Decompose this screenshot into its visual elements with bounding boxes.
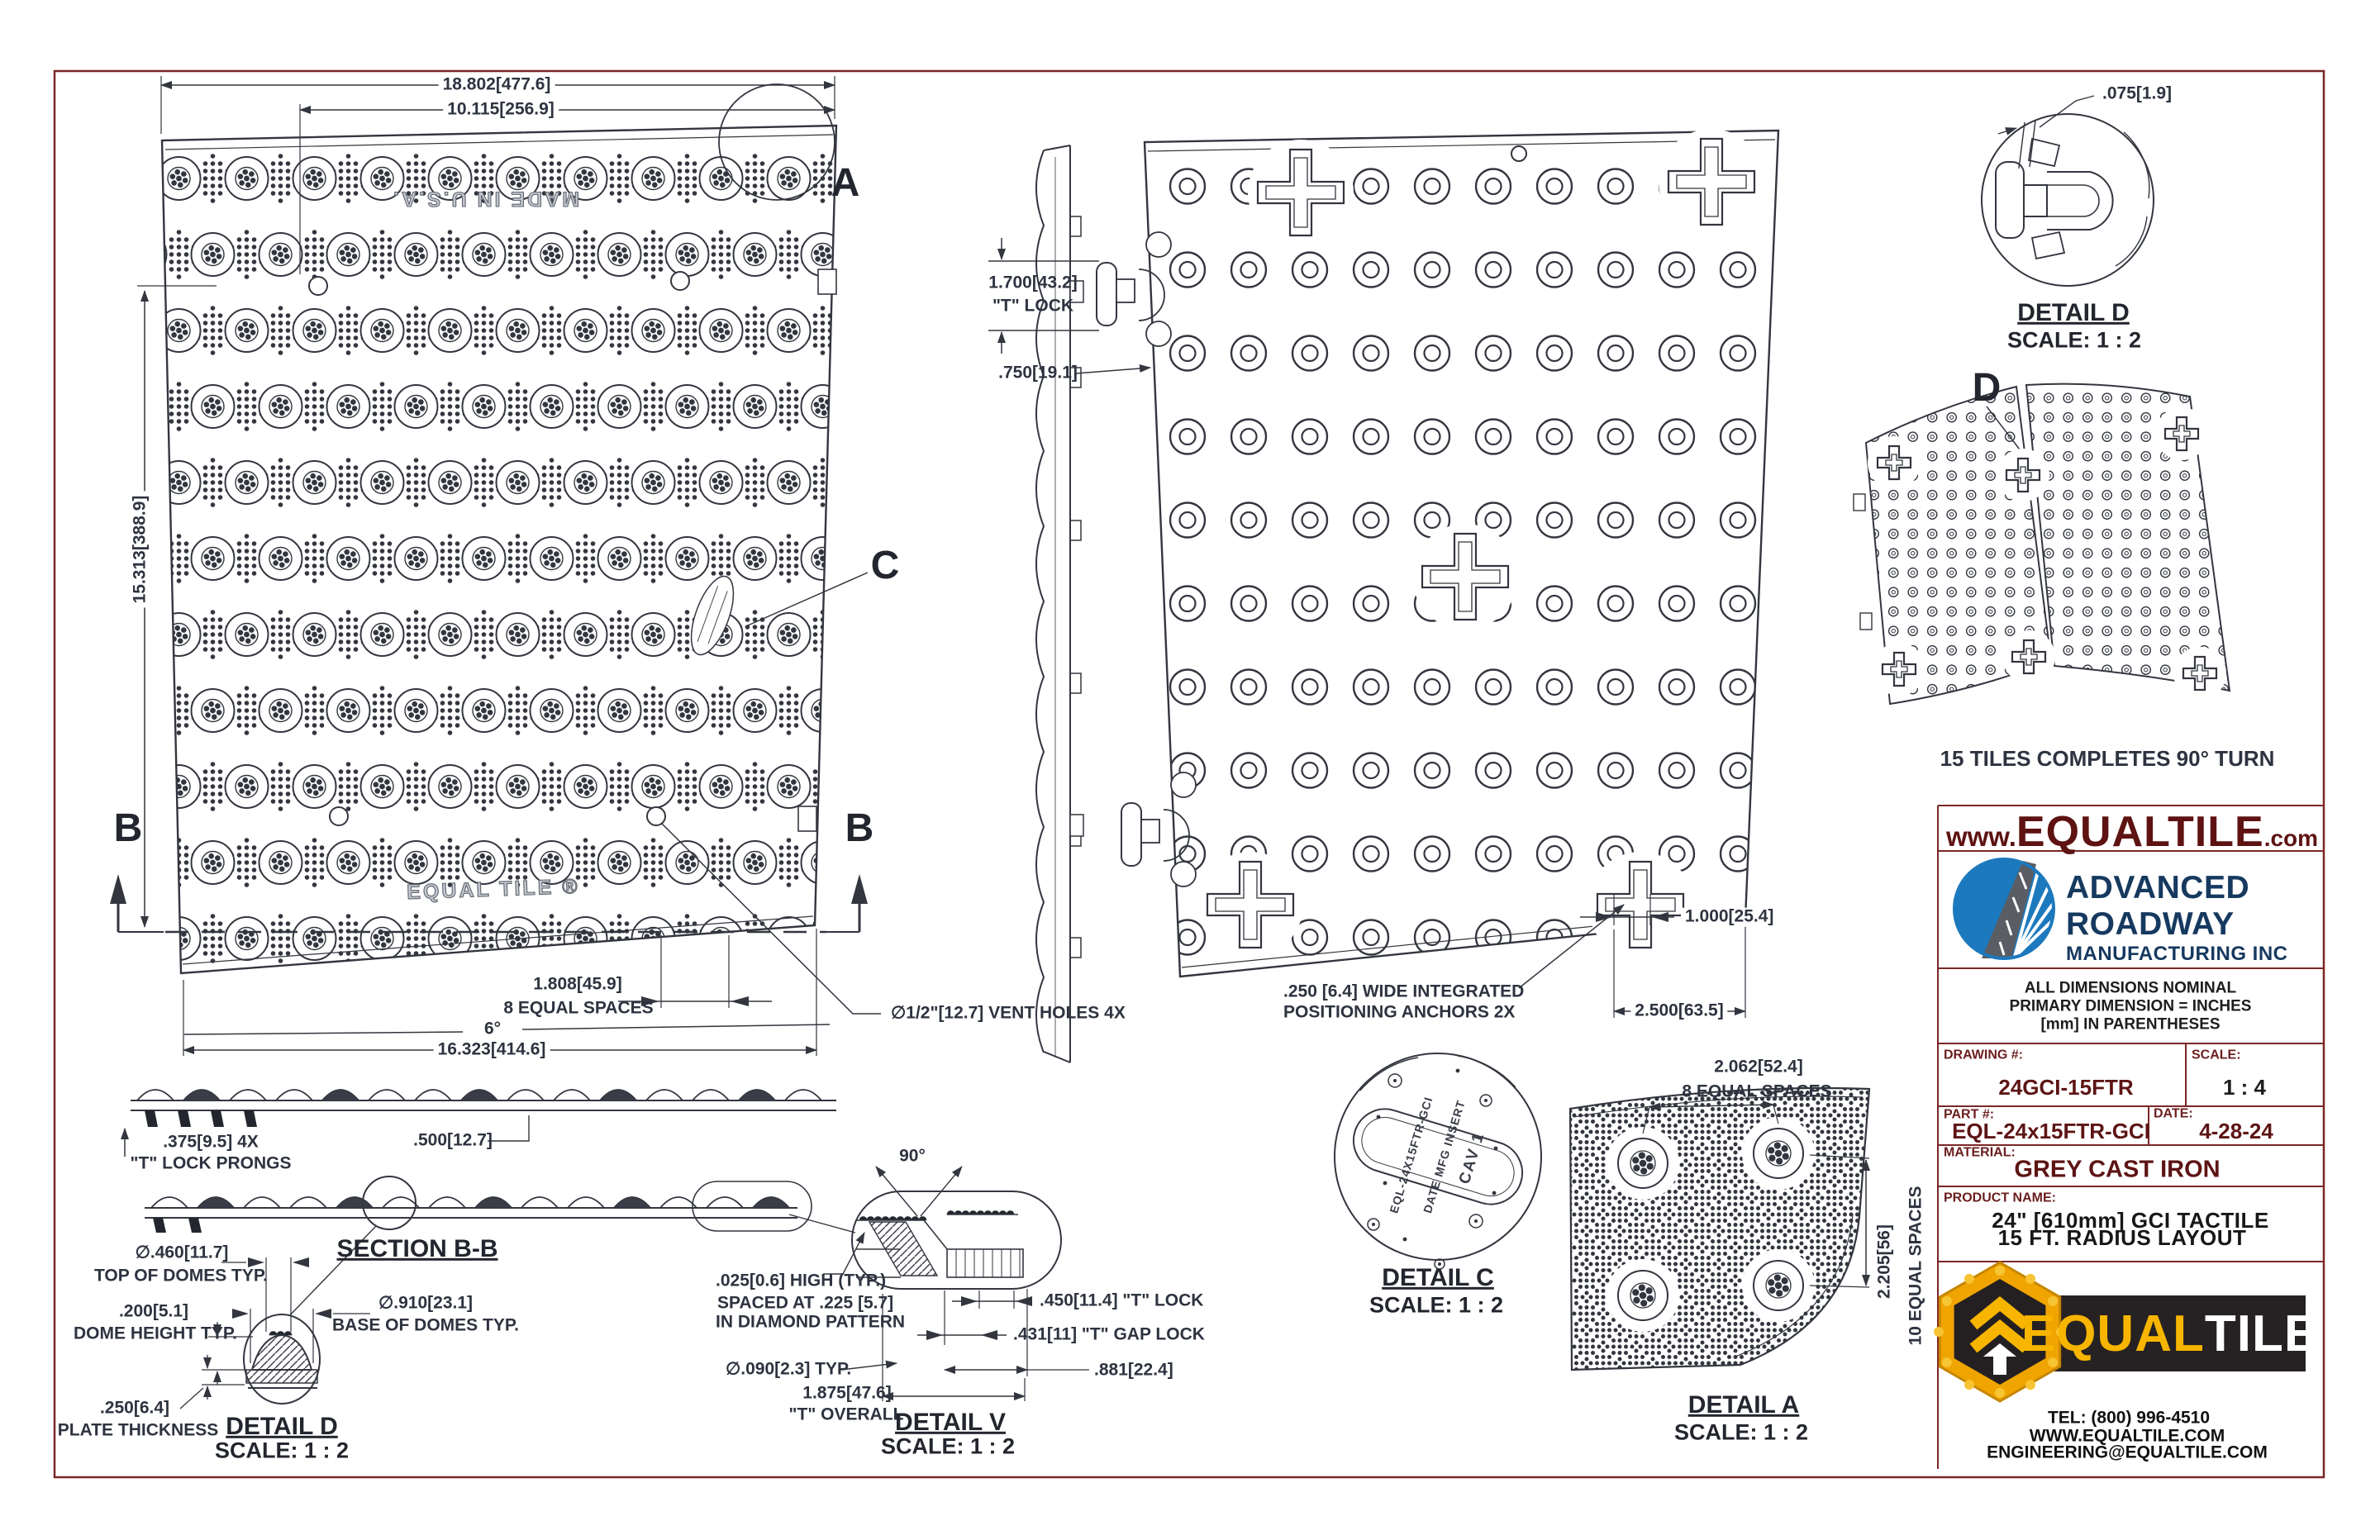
detail-c-view [1335,1053,1541,1269]
edge-view [1036,145,1083,1062]
website-brand: EQUALTILE [2016,807,2264,857]
website-prefix: www. [1946,821,2016,853]
logo-equal: EQUAL [2021,1305,2205,1363]
equaltile-logo-text: EQUALTILE [2035,1295,2306,1371]
detail-a-view [1570,1088,1869,1370]
back-view [988,129,1778,1018]
drawing-sheet: 18.802[477.6]10.115[256.9]15.313[388.9]1… [0,0,2380,1540]
radius-layout-view [1854,384,2230,704]
detail-v-view [693,1167,1089,1401]
detail-d-bottom-view [180,1257,370,1409]
section-strips [125,1090,836,1320]
website-tld: .com [2264,825,2318,852]
titleblock-website: www.EQUALTILE.com [1942,807,2322,848]
logo-tile: TILE [2205,1305,2319,1363]
detail-d-top-view [1982,96,2154,286]
